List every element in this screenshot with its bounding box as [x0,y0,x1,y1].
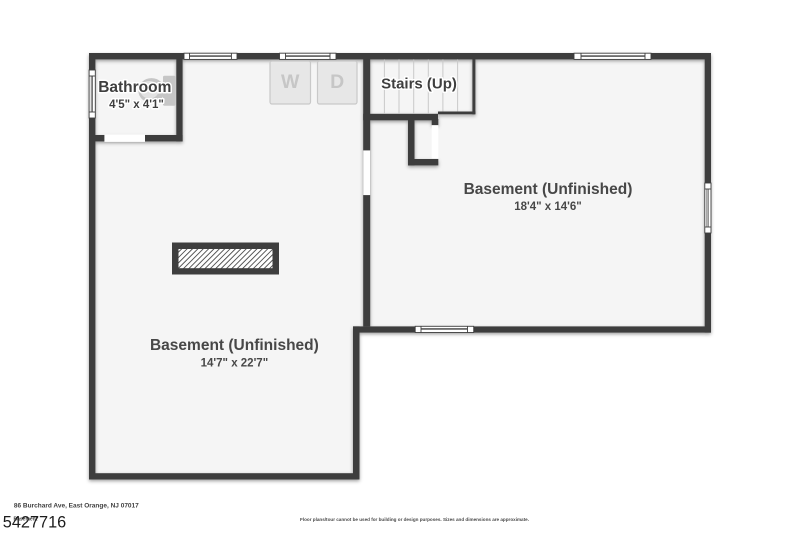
svg-text:4'5" x 4'1": 4'5" x 4'1" [109,99,164,111]
svg-text:D: D [330,71,344,93]
svg-text:Stairs (Up): Stairs (Up) [381,75,457,92]
svg-text:86 Burchard Ave, East Orange,: 86 Burchard Ave, East Orange, NJ 07017 [14,503,139,510]
svg-text:14'7" x 22'7": 14'7" x 22'7" [201,358,269,370]
svg-text:W: W [281,71,300,93]
svg-text:Bathroom: Bathroom [98,79,171,96]
svg-text:18'4" x 14'6": 18'4" x 14'6" [514,201,582,213]
svg-text:Basement (Unfinished): Basement (Unfinished) [464,181,633,198]
svg-text:5427716: 5427716 [3,514,66,532]
svg-text:Basement (Unfinished): Basement (Unfinished) [150,337,319,354]
svg-text:Floor plans/tour cannot be use: Floor plans/tour cannot be used for buil… [300,517,529,522]
